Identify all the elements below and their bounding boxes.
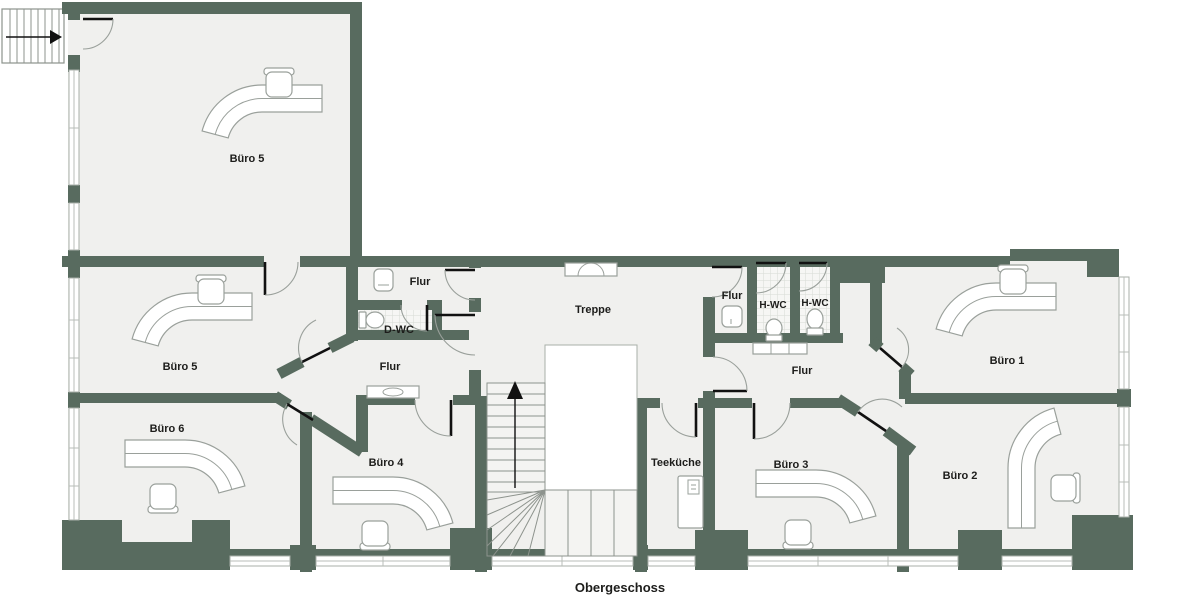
external-staircase-icon — [2, 9, 64, 63]
wall-segment — [703, 391, 715, 540]
chair-icon — [264, 68, 294, 97]
window-strip — [69, 408, 79, 520]
room-label-buero3: Büro 3 — [774, 459, 809, 471]
window-strip — [1002, 556, 1072, 566]
wall-segment — [897, 445, 909, 572]
chair-icon — [196, 275, 226, 304]
wall-segment — [68, 2, 80, 20]
toilet-icon — [766, 319, 782, 341]
window-strip — [230, 556, 290, 566]
window-strip — [492, 556, 633, 566]
wall-segment — [62, 256, 264, 267]
chair-icon — [148, 484, 178, 513]
room-label-dwc: D-WC — [384, 324, 414, 336]
room-label-flur-mid: Flur — [380, 361, 401, 373]
chair-icon — [998, 265, 1028, 294]
window-strip — [648, 556, 695, 566]
window-strip — [69, 278, 79, 392]
wall-segment — [230, 549, 1072, 556]
wall-segment — [352, 300, 402, 310]
fridge-icon — [678, 476, 703, 528]
wall-segment — [68, 185, 80, 203]
room-label-buero1: Büro 1 — [990, 355, 1025, 367]
window-strip — [1119, 407, 1129, 517]
wall-pier — [1072, 515, 1133, 570]
room-label-buero5: Büro 5 — [163, 361, 198, 373]
sink-icon — [722, 306, 742, 327]
wall-segment — [870, 256, 882, 343]
room-label-teekueche: Teeküche — [651, 457, 701, 469]
floor-top-wing — [68, 14, 350, 260]
wall-segment — [703, 297, 715, 357]
wall-notch — [122, 520, 192, 542]
wall-segment — [1010, 249, 1087, 261]
room-label-buero2: Büro 2 — [943, 470, 978, 482]
chair-icon — [783, 520, 813, 549]
wall-segment — [469, 370, 481, 398]
shelf-icon — [565, 263, 617, 276]
wall-segment — [68, 393, 281, 403]
wall-segment — [62, 2, 362, 14]
window-strip — [748, 556, 958, 566]
room-label-flur-right: Flur — [792, 365, 813, 377]
chair-icon — [1051, 473, 1080, 503]
wall-segment — [469, 256, 481, 268]
wall-pier — [695, 530, 748, 570]
stairwell-void — [545, 345, 637, 492]
floorplan-title: Obergeschoss — [575, 580, 665, 595]
wall-segment — [830, 256, 840, 341]
room-label-hwc2: H-WC — [801, 298, 828, 309]
sink-icon — [374, 269, 393, 291]
chair-icon — [360, 521, 390, 550]
wall-segment — [1087, 249, 1119, 277]
wall-pier — [958, 530, 1002, 570]
wall-segment — [905, 393, 1131, 404]
floorplan-drawing: Büro 5 Büro 5 Büro 6 Büro 4 Flur D-WC Fl… — [0, 0, 1200, 600]
window-strip — [1119, 277, 1129, 389]
room-label-flur-small-right: Flur — [722, 290, 743, 302]
room-label-buero5-top: Büro 5 — [230, 153, 265, 165]
wall-segment — [68, 55, 80, 72]
floorplan-canvas: Büro 5 Büro 5 Büro 6 Büro 4 Flur D-WC Fl… — [0, 0, 1200, 600]
wall-segment — [635, 398, 660, 408]
room-label-buero6: Büro 6 — [150, 423, 185, 435]
wall-segment — [475, 396, 487, 572]
toilet-icon — [807, 309, 823, 335]
window-strip — [69, 203, 79, 250]
room-label-flur-top: Flur — [410, 276, 431, 288]
wall-segment — [300, 412, 312, 572]
room-label-buero4: Büro 4 — [369, 457, 405, 469]
shelf-icon — [367, 386, 419, 398]
room-label-hwc1: H-WC — [759, 300, 786, 311]
wall-segment — [703, 256, 715, 267]
room-label-treppe: Treppe — [575, 304, 611, 316]
wall-segment — [698, 398, 752, 408]
cabinet-icon — [753, 343, 807, 354]
window-strip — [316, 556, 450, 566]
wall-segment — [790, 398, 843, 408]
wall-segment — [300, 256, 1010, 267]
toilet-icon — [359, 312, 384, 328]
wall-segment — [350, 2, 362, 265]
wall-segment — [68, 256, 80, 278]
window-strip — [69, 70, 79, 185]
wall-segment — [790, 262, 800, 341]
wall-segment — [747, 262, 757, 341]
wall-segment — [346, 256, 358, 341]
